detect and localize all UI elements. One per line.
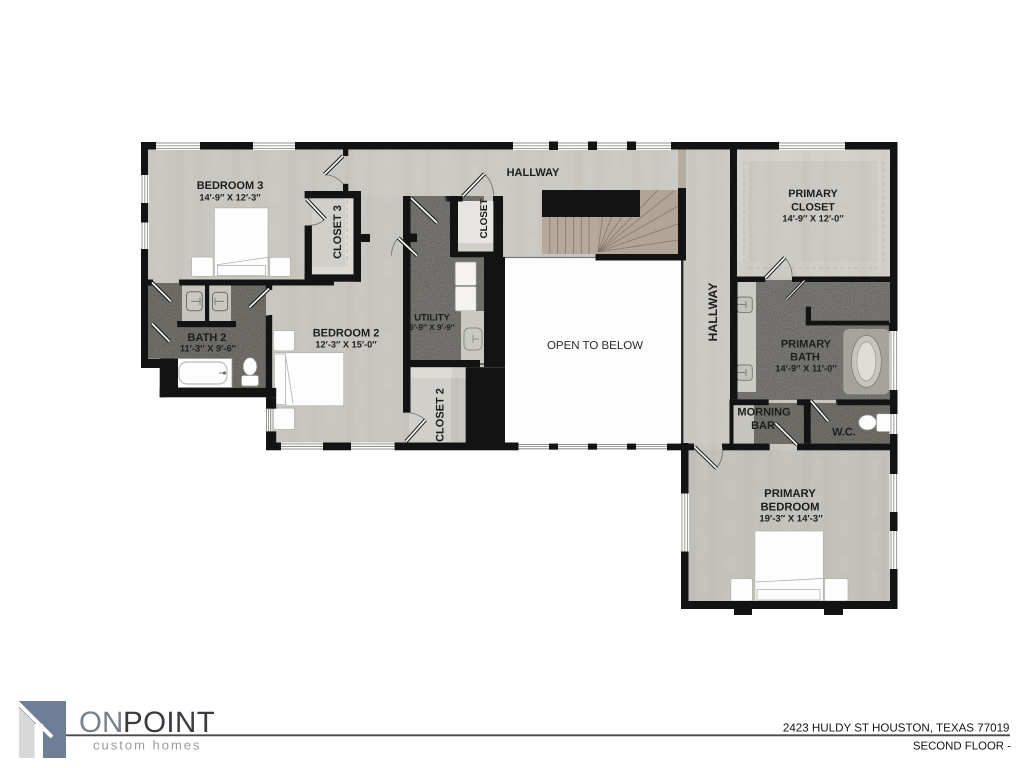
svg-text:6′-9″ X 9′-9″: 6′-9″ X 9′-9″ — [409, 323, 455, 332]
svg-text:BEDROOM 3: BEDROOM 3 — [197, 180, 264, 192]
svg-text:PRIMARY: PRIMARY — [781, 339, 832, 351]
svg-text:W.C.: W.C. — [832, 426, 856, 438]
svg-text:BEDROOM 2: BEDROOM 2 — [313, 327, 380, 339]
svg-text:MORNING: MORNING — [737, 406, 790, 418]
svg-text:2423 HULDY ST HOUSTON, TEXAS 7: 2423 HULDY ST HOUSTON, TEXAS 77019 — [783, 722, 1010, 735]
svg-text:ON: ON — [79, 706, 123, 739]
svg-text:HALLWAY: HALLWAY — [706, 283, 720, 342]
svg-text:custom homes: custom homes — [93, 738, 202, 753]
svg-text:19′-3″ X 14′-3″: 19′-3″ X 14′-3″ — [759, 514, 823, 525]
svg-text:CLOSET 2: CLOSET 2 — [434, 388, 446, 442]
svg-text:CLOSET: CLOSET — [791, 201, 835, 213]
svg-text:CLOSET 3: CLOSET 3 — [332, 205, 344, 259]
svg-text:UTILITY: UTILITY — [414, 312, 450, 323]
svg-text:14′-9″ X 12′-0″: 14′-9″ X 12′-0″ — [782, 213, 844, 223]
svg-text:BATH: BATH — [790, 352, 820, 364]
svg-text:POINT: POINT — [123, 706, 215, 739]
svg-text:12′-3″ X 15′-0″: 12′-3″ X 15′-0″ — [315, 339, 377, 349]
svg-text:BATH 2: BATH 2 — [188, 332, 227, 344]
svg-text:PRIMARY: PRIMARY — [764, 488, 816, 500]
svg-text:HALLWAY: HALLWAY — [507, 167, 560, 179]
svg-text:SECOND FLOOR -: SECOND FLOOR - — [913, 740, 1011, 752]
svg-text:14′-9″ X 11′-0″: 14′-9″ X 11′-0″ — [775, 364, 837, 374]
svg-text:11′-3″ X 9′-6″: 11′-3″ X 9′-6″ — [180, 344, 237, 354]
svg-text:CLOSET: CLOSET — [479, 198, 490, 238]
svg-text:PRIMARY: PRIMARY — [788, 188, 838, 200]
svg-text:OPEN TO BELOW: OPEN TO BELOW — [547, 340, 643, 352]
svg-text:BEDROOM: BEDROOM — [761, 502, 820, 514]
svg-text:BAR: BAR — [751, 420, 775, 432]
svg-text:14′-9″ X 12′-3″: 14′-9″ X 12′-3″ — [199, 192, 261, 202]
